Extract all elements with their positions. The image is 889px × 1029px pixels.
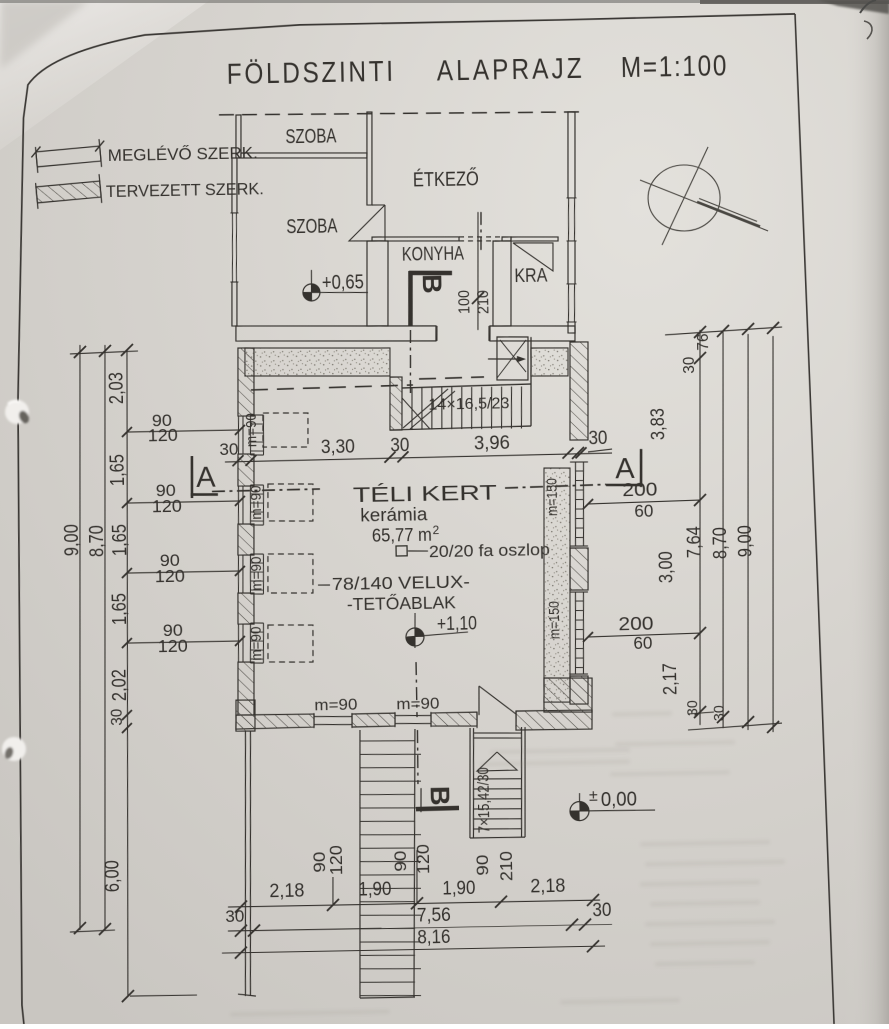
svg-text:2,18: 2,18 [530,875,565,898]
svg-text:78/140 VELUX-: 78/140 VELUX- [332,571,471,594]
svg-text:200: 200 [618,613,653,635]
svg-text:B: B [425,786,455,806]
svg-text:B: B [417,274,447,294]
svg-text:m=150: m=150 [545,478,562,516]
svg-text:7,64: 7,64 [684,526,706,559]
svg-text:2,17: 2,17 [660,663,682,695]
svg-text:200: 200 [622,479,657,501]
svg-text:±: ± [589,788,598,805]
svg-text:65,77 m: 65,77 m [372,523,432,545]
svg-text:30: 30 [588,428,607,449]
svg-text:1,65: 1,65 [109,524,132,556]
svg-text:TERVEZETT SZERK.: TERVEZETT SZERK. [106,180,264,201]
svg-text:120: 120 [326,845,347,876]
svg-text:+1,10: +1,10 [437,613,477,635]
svg-text:0,00: 0,00 [601,788,637,811]
svg-text:m=150: m=150 [547,601,564,639]
svg-text:m=90: m=90 [249,556,266,590]
svg-text:7×15,42/30: 7×15,42/30 [475,767,493,834]
svg-text:6,00: 6,00 [102,860,125,892]
svg-text:120: 120 [148,425,179,446]
svg-text:1,90: 1,90 [442,877,476,900]
svg-text:120: 120 [158,636,189,657]
svg-text:8,16: 8,16 [417,926,450,949]
svg-text:120: 120 [152,496,183,517]
svg-text:M=1:100: M=1:100 [621,49,729,83]
svg-text:A: A [196,462,217,494]
svg-text:3,96: 3,96 [474,432,510,455]
svg-text:60: 60 [634,501,654,521]
svg-text:30: 30 [109,708,126,725]
svg-text:SZOBA: SZOBA [286,216,338,239]
svg-text:120: 120 [413,844,434,875]
svg-text:3,30: 3,30 [321,436,356,459]
svg-text:2,02: 2,02 [109,669,132,701]
svg-text:m=90: m=90 [244,413,261,447]
svg-text:120: 120 [155,566,186,587]
svg-text:2: 2 [432,523,439,537]
svg-text:9,00: 9,00 [61,524,84,556]
svg-text:76: 76 [695,333,712,350]
svg-text:14×16,5/23: 14×16,5/23 [428,395,509,413]
svg-text:30: 30 [390,435,409,456]
svg-text:210: 210 [475,290,492,315]
svg-text:210: 210 [496,851,517,882]
svg-text:20/20 fa oszlop: 20/20 fa oszlop [429,541,550,561]
svg-text:30: 30 [592,900,611,921]
svg-text:-TETŐABLAK: -TETŐABLAK [347,591,457,614]
svg-text:60: 60 [633,633,653,653]
svg-text:KRA: KRA [514,266,548,288]
svg-text:ALAPRAJZ: ALAPRAJZ [437,52,586,87]
svg-text:1,65: 1,65 [107,454,130,486]
svg-text:30: 30 [225,907,244,926]
svg-text:KONYHA: KONYHA [402,242,464,265]
svg-text:m=90: m=90 [249,626,266,660]
svg-text:1,65: 1,65 [109,593,132,625]
svg-text:8,70: 8,70 [710,527,732,559]
svg-text:7,56: 7,56 [417,904,451,927]
svg-text:FÖLDSZINTI: FÖLDSZINTI [227,55,396,91]
svg-text:2,18: 2,18 [269,880,304,903]
svg-text:2,03: 2,03 [106,372,129,404]
svg-text:m=90: m=90 [396,696,439,714]
svg-text:30: 30 [219,440,238,459]
svg-text:3,00: 3,00 [656,551,678,583]
svg-text:ÉTKEZŐ: ÉTKEZŐ [413,167,479,191]
svg-text:kerámia: kerámia [360,503,428,525]
svg-text:30: 30 [681,356,698,374]
svg-text:3,83: 3,83 [648,408,670,440]
svg-text:8,70: 8,70 [86,525,109,557]
svg-text:m=90: m=90 [314,697,357,715]
svg-text:1,90: 1,90 [358,878,392,901]
svg-text:100: 100 [456,290,473,315]
svg-text:SZOBA: SZOBA [285,125,337,148]
svg-text:30: 30 [712,705,728,721]
svg-text:30: 30 [685,700,701,716]
svg-text:+0,65: +0,65 [322,271,364,294]
svg-text:90: 90 [473,855,492,876]
svg-text:9,00: 9,00 [735,525,757,557]
svg-text:90: 90 [391,851,410,872]
